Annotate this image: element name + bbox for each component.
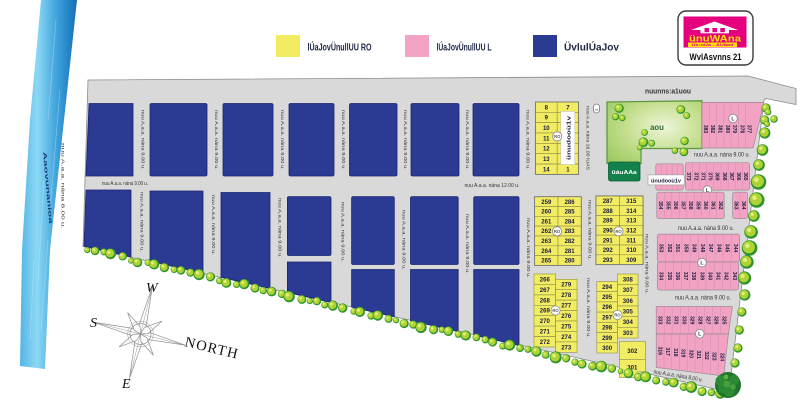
svg-text:341: 341 <box>715 272 721 281</box>
svg-text:322: 322 <box>703 351 709 360</box>
svg-text:Us:nÜa - AUäad: Us:nÜa - AUäad <box>692 42 734 47</box>
svg-text:335: 335 <box>666 272 672 281</box>
svg-text:344: 344 <box>732 244 738 253</box>
svg-text:262: 262 <box>541 229 552 235</box>
svg-text:nuu A.a.a. nána 9.00 u.: nuu A.a.a. nána 9.00 u. <box>464 110 470 170</box>
svg-text:289: 289 <box>603 219 614 225</box>
svg-text:278: 278 <box>561 293 572 299</box>
svg-text:373: 373 <box>685 172 691 181</box>
svg-text:286: 286 <box>565 200 576 206</box>
svg-text:lÚaJovÜnullUU RO: lÚaJovÜnullUU RO <box>308 41 372 54</box>
svg-text:351: 351 <box>674 244 680 253</box>
svg-text:323: 323 <box>711 352 717 361</box>
svg-text:263: 263 <box>541 239 552 245</box>
svg-text:336: 336 <box>674 272 680 281</box>
svg-text:nuu A.a.a. nána 9.00 u.: nuu A.a.a. nána 9.00 u. <box>139 192 145 252</box>
svg-text:ünudooù1v: ünudooù1v <box>651 178 681 184</box>
svg-text:364: 364 <box>740 201 746 210</box>
svg-text:350: 350 <box>682 244 688 253</box>
svg-text:357: 357 <box>679 201 685 210</box>
svg-text:333: 333 <box>657 316 663 325</box>
svg-text:307: 307 <box>623 288 634 294</box>
svg-text:292: 292 <box>603 248 614 254</box>
svg-text:nuu A.a.a. nána 9.00 u.: nuu A.a.a. nána 9.00 u. <box>279 110 285 170</box>
svg-text:295: 295 <box>602 295 613 301</box>
svg-text:nuu A.a.a. nána 9.00 u.: nuu A.a.a. nána 9.00 u. <box>587 200 593 260</box>
svg-text:361: 361 <box>709 201 715 210</box>
svg-text:aa: aa <box>595 108 599 112</box>
svg-text:300: 300 <box>602 346 613 352</box>
svg-text:nuu A.a.a. nána 9.00 u.: nuu A.a.a. nána 9.00 u. <box>525 218 531 278</box>
svg-text:347: 347 <box>707 244 713 253</box>
svg-text:325: 325 <box>721 316 727 325</box>
svg-text:293: 293 <box>603 258 614 264</box>
svg-text:275: 275 <box>561 324 572 330</box>
svg-text:279: 279 <box>561 283 572 289</box>
svg-text:381: 381 <box>717 125 723 134</box>
svg-text:nuu A.a.a. nána 9.00 u.: nuu A.a.a. nána 9.00 u. <box>524 110 530 170</box>
svg-text:316: 316 <box>656 347 662 356</box>
svg-text:ünuWAna: ünuWAna <box>689 34 742 44</box>
svg-text:343: 343 <box>731 272 737 281</box>
svg-text:RO: RO <box>554 134 561 139</box>
svg-text:280: 280 <box>565 259 576 265</box>
svg-text:W: W <box>146 281 159 296</box>
svg-text:304: 304 <box>623 320 634 326</box>
svg-text:334: 334 <box>658 272 664 281</box>
svg-text:269: 269 <box>540 309 551 315</box>
svg-text:259: 259 <box>541 200 552 206</box>
svg-text:274: 274 <box>561 335 572 341</box>
svg-text:276: 276 <box>561 314 572 320</box>
svg-text:342: 342 <box>723 272 729 281</box>
svg-text:366: 366 <box>735 172 741 181</box>
svg-text:nuu A.a.a. nána 9.00 u.: nuu A.a.a. nána 9.00 u. <box>339 202 345 262</box>
svg-text:313: 313 <box>626 219 637 225</box>
svg-text:268: 268 <box>540 298 551 304</box>
svg-text:352: 352 <box>666 244 672 253</box>
svg-text:lÚaJovÜnullUU L: lÚaJovÜnullUU L <box>437 41 492 54</box>
svg-text:306: 306 <box>623 299 634 305</box>
svg-text:349: 349 <box>691 244 697 253</box>
svg-text:ûáuAAa: ûáuAAa <box>612 170 638 176</box>
svg-text:nuu A.a.a. nána 9.00 u.: nuu A.a.a. nána 9.00 u. <box>464 214 470 274</box>
svg-text:NORTH: NORTH <box>183 334 240 362</box>
svg-text:284: 284 <box>565 219 576 225</box>
svg-text:367: 367 <box>728 172 734 181</box>
svg-text:324: 324 <box>718 353 724 362</box>
svg-text:359: 359 <box>694 201 700 210</box>
svg-text:326: 326 <box>713 316 719 325</box>
svg-text:327: 327 <box>705 316 711 325</box>
svg-text:272: 272 <box>540 340 551 346</box>
svg-text:277: 277 <box>561 304 572 310</box>
svg-text:362: 362 <box>717 201 723 210</box>
svg-text:315: 315 <box>626 199 637 205</box>
svg-text:345: 345 <box>724 244 730 253</box>
svg-text:320: 320 <box>687 350 693 359</box>
svg-text:nuu A.a.a. nána 9.00 u.: nuu A.a.a. nána 9.00 u. <box>675 296 731 302</box>
svg-text:312: 312 <box>626 228 637 234</box>
svg-text:260: 260 <box>541 210 552 216</box>
svg-text:WvlAsvnns 21: WvlAsvnns 21 <box>690 51 742 62</box>
svg-text:13: 13 <box>543 157 550 163</box>
svg-text:264: 264 <box>541 249 552 255</box>
svg-text:283: 283 <box>565 229 576 235</box>
svg-text:378: 378 <box>738 125 744 134</box>
svg-text:340: 340 <box>706 272 712 281</box>
svg-text:nuu A.a.a. nána 9.00 u.: nuu A.a.a. nána 9.00 u. <box>400 210 406 270</box>
svg-text:302: 302 <box>627 349 638 355</box>
svg-text:RO: RO <box>554 229 561 234</box>
svg-text:11: 11 <box>543 136 550 142</box>
svg-text:285: 285 <box>565 210 576 216</box>
svg-text:ÜvlulÚaJov: ÜvlulÚaJov <box>564 41 619 54</box>
svg-text:370: 370 <box>707 172 713 181</box>
svg-text:314: 314 <box>626 209 637 215</box>
svg-text:nuu A.a.a. nána 9.00 u.: nuu A.a.a. nána 9.00 u. <box>210 195 216 255</box>
svg-text:10: 10 <box>543 126 550 132</box>
svg-text:318: 318 <box>672 348 678 357</box>
svg-text:331: 331 <box>673 316 679 325</box>
svg-text:14: 14 <box>543 167 550 173</box>
svg-text:296: 296 <box>602 305 613 311</box>
svg-text:E: E <box>121 377 131 392</box>
svg-text:332: 332 <box>665 316 671 325</box>
svg-text:358: 358 <box>687 201 693 210</box>
svg-text:372: 372 <box>692 172 698 181</box>
svg-text:261: 261 <box>541 219 552 225</box>
svg-text:339: 339 <box>698 272 704 281</box>
svg-text:nuu A.a.a. nána 9.00 u.: nuu A.a.a. nána 9.00 u. <box>140 110 146 170</box>
svg-text:RO: RO <box>552 308 559 313</box>
svg-text:ünudooù1v: ünudooù1v <box>566 115 572 160</box>
svg-text:281: 281 <box>565 249 576 255</box>
svg-text:265: 265 <box>541 259 552 265</box>
svg-text:266: 266 <box>540 277 551 283</box>
svg-text:330: 330 <box>681 316 687 325</box>
svg-text:379: 379 <box>731 125 737 134</box>
svg-text:297: 297 <box>602 315 613 321</box>
svg-text:317: 317 <box>664 347 670 356</box>
svg-text:369: 369 <box>714 172 720 181</box>
svg-text:329: 329 <box>689 316 695 325</box>
svg-text:299: 299 <box>602 336 613 342</box>
svg-text:380: 380 <box>724 125 730 134</box>
svg-text:287: 287 <box>603 199 614 205</box>
svg-text:S: S <box>90 316 97 331</box>
svg-text:305: 305 <box>623 310 634 316</box>
svg-text:nuu A.a.a. nána 9.00 u.: nuu A.a.a. nána 9.00 u. <box>213 110 219 170</box>
svg-text:nuu A.a.a. nána 9.00 u.: nuu A.a.a. nána 9.00 u. <box>340 110 346 170</box>
svg-text:311: 311 <box>626 238 636 244</box>
svg-text:363: 363 <box>733 201 739 210</box>
svg-text:354: 354 <box>657 201 663 210</box>
svg-text:273: 273 <box>561 345 572 351</box>
svg-text:371: 371 <box>699 172 705 181</box>
svg-text:nuu A.a.a. nána 9.00 u.: nuu A.a.a. nána 9.00 u. <box>644 234 650 294</box>
svg-text:271: 271 <box>540 330 551 336</box>
svg-text:360: 360 <box>702 201 708 210</box>
svg-text:nuu A.a.a. nána 12.00 u.: nuu A.a.a. nána 12.00 u. <box>465 183 520 189</box>
svg-text:337: 337 <box>682 272 688 281</box>
svg-text:383: 383 <box>702 125 708 134</box>
svg-text:nuu A.a.a. nána 16.00 IUAS: nuu A.a.a. nána 16.00 IUAS <box>585 106 591 170</box>
svg-text:294: 294 <box>602 285 613 291</box>
svg-text:309: 309 <box>626 258 637 264</box>
svg-text:282: 282 <box>565 239 576 245</box>
svg-text:nuu A.a.a. nána 9.00 u.: nuu A.a.a. nána 9.00 u. <box>277 198 283 258</box>
svg-text:298: 298 <box>602 326 613 332</box>
svg-text:308: 308 <box>623 278 634 284</box>
svg-text:nuu A.a.a. nána 9.00 u.: nuu A.a.a. nána 9.00 u. <box>402 110 408 170</box>
svg-text:353: 353 <box>658 244 664 253</box>
svg-text:nuu A.a.a. nána 8.00 u.: nuu A.a.a. nána 8.00 u. <box>60 143 66 229</box>
svg-text:291: 291 <box>603 238 614 244</box>
svg-text:338: 338 <box>690 272 696 281</box>
svg-text:290: 290 <box>603 228 614 234</box>
svg-text:RO: RO <box>614 313 621 318</box>
svg-text:310: 310 <box>626 248 637 254</box>
svg-text:355: 355 <box>664 201 670 210</box>
svg-text:346: 346 <box>715 244 721 253</box>
svg-text:319: 319 <box>680 349 686 358</box>
svg-text:aou: aou <box>650 123 664 132</box>
svg-text:270: 270 <box>540 319 551 325</box>
svg-text:267: 267 <box>540 288 551 294</box>
svg-text:RO: RO <box>615 229 622 234</box>
svg-text:368: 368 <box>721 172 727 181</box>
svg-text:288: 288 <box>603 209 614 215</box>
svg-text:12: 12 <box>543 147 550 153</box>
svg-text:nuu A.a.a. nána 9.00 u.: nuu A.a.a. nána 9.00 u. <box>694 153 750 159</box>
svg-text:321: 321 <box>695 351 701 360</box>
svg-text:nuunns:a1uou: nuunns:a1uou <box>645 87 691 96</box>
svg-text:356: 356 <box>672 201 678 210</box>
svg-text:365: 365 <box>742 172 748 181</box>
svg-text:328: 328 <box>697 316 703 325</box>
svg-text:377: 377 <box>746 125 752 134</box>
svg-text:nuu A.a.a. nána 9.00 u.: nuu A.a.a. nána 9.00 u. <box>585 278 591 338</box>
svg-text:nuu A.a.a. nána 9.00 u.: nuu A.a.a. nána 9.00 u. <box>102 181 148 187</box>
svg-text:348: 348 <box>699 244 705 253</box>
svg-text:382: 382 <box>709 125 715 134</box>
svg-text:303: 303 <box>623 331 634 337</box>
svg-text:nuu A.a.a. nána 9.00 u.: nuu A.a.a. nána 9.00 u. <box>678 226 734 232</box>
